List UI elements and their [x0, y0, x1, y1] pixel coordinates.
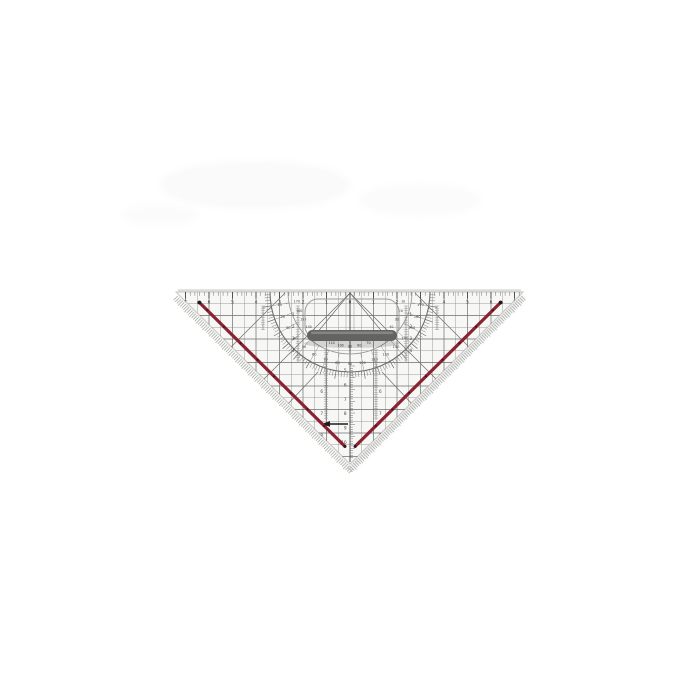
ink-edge-dot: [256, 359, 258, 361]
ink-edge-dot: [206, 309, 208, 311]
ink-edge-dot: [290, 392, 292, 394]
degree-number-outer: 80: [335, 361, 340, 365]
smudge: [122, 204, 198, 226]
center-scale-number: 6: [344, 382, 347, 388]
degree-number-inner: 40: [389, 325, 393, 329]
ink-edge-dot: [273, 375, 275, 377]
degree-number-outer: 50: [302, 345, 307, 349]
flank-scale-number: 7: [320, 411, 323, 416]
ink-edge-dot: [391, 408, 393, 410]
flank-scale-number: 6: [379, 389, 382, 394]
degree-number-inner: 170: [294, 300, 300, 304]
geometry-set-square-photo: 7654321012345671020304050607080901001101…: [0, 0, 700, 700]
ruler-number: 4: [443, 300, 446, 306]
center-scale-number: 8: [344, 411, 347, 417]
ink-edge-dot: [223, 326, 225, 328]
ruler-number: 5: [466, 300, 469, 306]
smudge: [360, 184, 480, 216]
center-scale-number: 9: [344, 426, 347, 432]
ink-edge-end-dot: [354, 445, 357, 448]
degree-number-outer: 20: [281, 315, 286, 319]
ruler-number: 5: [231, 300, 234, 306]
ruler-number: 1: [325, 300, 328, 306]
degree-number-outer: 10: [277, 303, 282, 307]
handle-bar-highlight: [311, 332, 393, 335]
degree-number-outer: 130: [393, 345, 401, 349]
triangle-body: [176, 292, 523, 464]
ink-edge-dot: [408, 392, 410, 394]
ruler-number: 0: [349, 300, 352, 306]
ink-edge-dot: [442, 359, 444, 361]
flank-scale-number: 7: [379, 411, 382, 416]
ruler-number: 6: [490, 300, 493, 306]
background-smudges: [122, 161, 480, 226]
set-square: 7654321012345671020304050607080901001101…: [174, 290, 526, 473]
degree-number-outer: 30: [286, 326, 291, 330]
flank-scale-number: 6: [320, 389, 323, 394]
degree-number-outer: 120: [382, 352, 390, 356]
ink-edge-dot: [492, 309, 494, 311]
ink-edge-end-dot: [499, 301, 503, 305]
degree-number-outer: 160: [414, 315, 422, 319]
ink-edge-dot: [458, 342, 460, 344]
degree-number-outer: 170: [417, 303, 425, 307]
center-scale-number: 5: [344, 368, 347, 374]
smudge: [160, 161, 350, 209]
degree-number-inner: 10: [401, 300, 405, 304]
ruler-number: 4: [255, 300, 258, 306]
ruler-number: 6: [208, 300, 211, 306]
photo-canvas: 7654321012345671020304050607080901001101…: [0, 0, 700, 700]
ink-edge-dot: [475, 326, 477, 328]
degree-number-outer: 60: [312, 352, 317, 356]
center-scale-number: 7: [344, 397, 347, 403]
ink-edge-end-dot: [198, 301, 202, 305]
degree-number-inner: 30: [395, 317, 399, 321]
degree-number-outer: 90: [348, 362, 353, 366]
degree-number-inner: 140: [305, 325, 311, 329]
ink-edge-end-dot: [343, 445, 346, 448]
ink-edge-dot: [375, 425, 377, 427]
ink-edge-dot: [425, 375, 427, 377]
degree-number-outer: 100: [359, 361, 367, 365]
ruler-number: 1: [372, 300, 375, 306]
ruler-number: 2: [302, 300, 305, 306]
ink-edge-dot: [240, 342, 242, 344]
degree-number-outer: 140: [401, 336, 409, 340]
ink-edge-dot: [306, 408, 308, 410]
ink-edge-dot: [323, 425, 325, 427]
